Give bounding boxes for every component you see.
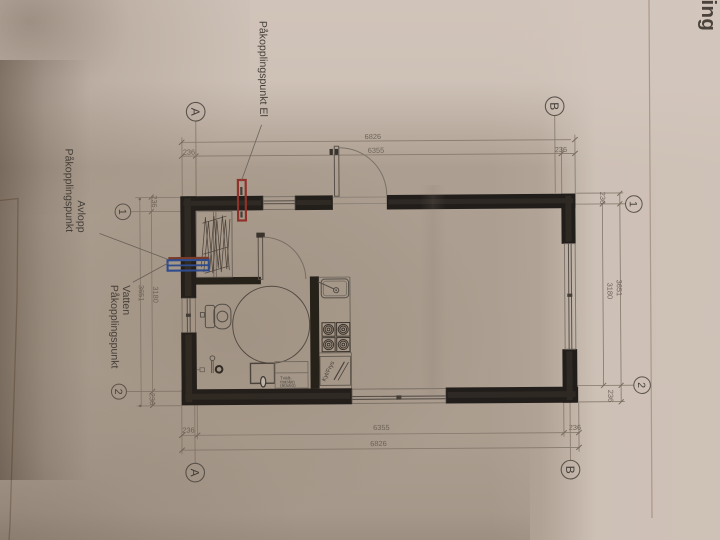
- svg-text:2: 2: [635, 382, 647, 388]
- svg-text:236: 236: [555, 145, 567, 154]
- svg-text:ing: ing: [697, 0, 720, 31]
- svg-text:1: 1: [627, 201, 639, 207]
- svg-text:6826: 6826: [365, 132, 382, 141]
- svg-text:B: B: [547, 102, 561, 110]
- svg-text:B: B: [563, 466, 577, 474]
- svg-text:3651: 3651: [615, 280, 624, 297]
- svg-text:6355: 6355: [368, 146, 385, 155]
- svg-text:Påkopplingspunkt El: Påkopplingspunkt El: [257, 21, 270, 117]
- svg-text:3180: 3180: [605, 283, 614, 300]
- svg-text:236: 236: [606, 390, 615, 402]
- svg-text:236: 236: [598, 192, 607, 204]
